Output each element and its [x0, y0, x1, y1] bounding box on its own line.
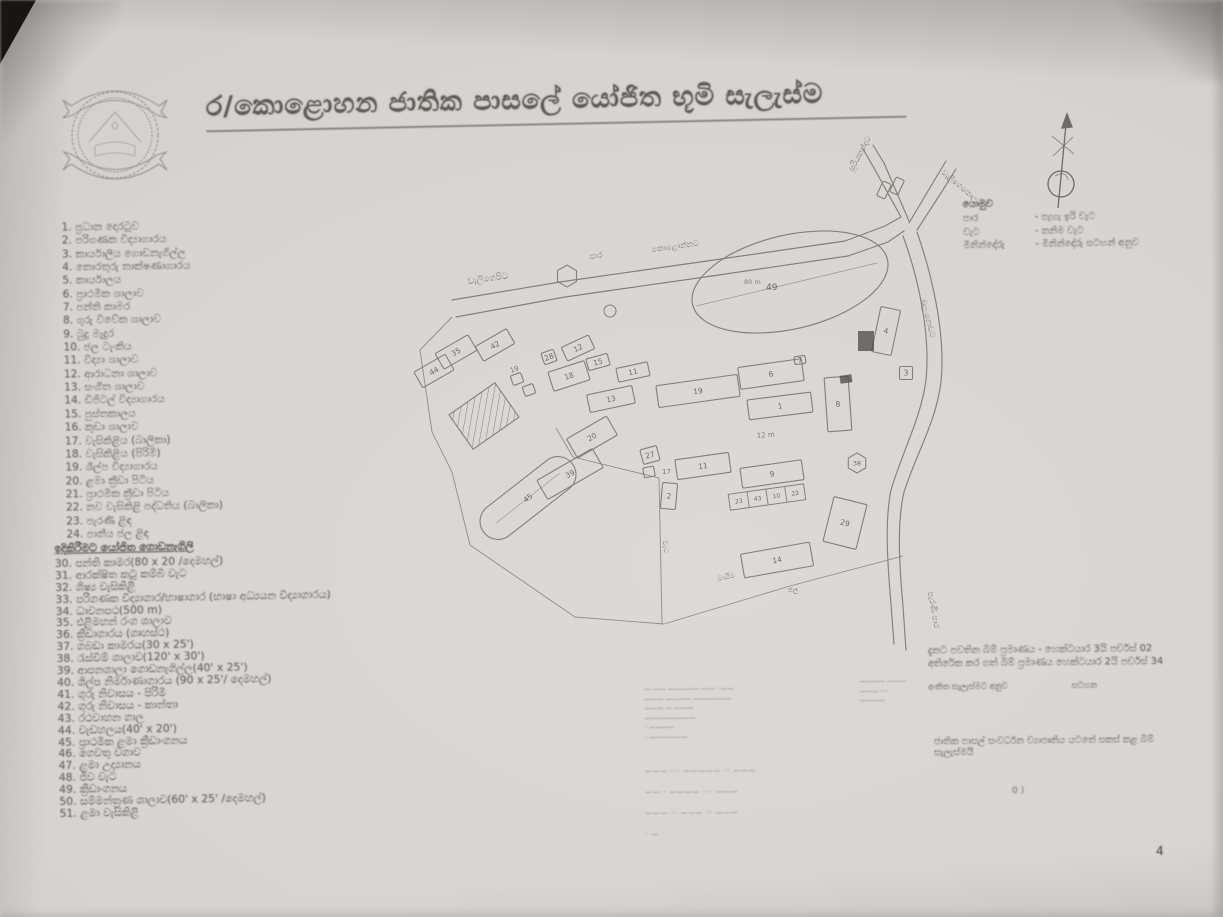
road-label: වැට [661, 540, 670, 553]
building-number: 42 [489, 339, 502, 352]
building-number: 6 [768, 369, 774, 379]
hatched-building [449, 383, 519, 450]
building-outline [522, 383, 536, 396]
building-number: 12 [572, 342, 585, 354]
building-number: 44 [428, 365, 441, 378]
building-number: 28 [543, 351, 555, 363]
building-number: 19 [693, 386, 704, 396]
hexagon-structure [558, 265, 577, 287]
building-number: 13 [605, 394, 616, 405]
lot-divider [747, 492, 749, 508]
photo-corner-shadow-tr [1113, 0, 1223, 80]
building-number: 4 [883, 326, 890, 336]
road-label: කොළොන්නට [651, 237, 700, 255]
road-label: පාර [589, 250, 603, 261]
playground-area-text: 80 m [744, 278, 761, 286]
lot-divider [785, 486, 787, 502]
stamp-line: - —————— [645, 731, 935, 743]
stamp-table-row: ——— ··· ————— ·· ——— [645, 758, 935, 782]
dark-structure [858, 331, 874, 351]
building-number: 1 [777, 401, 783, 411]
legend-existing-list: 1. ප්‍රධාන දොරටුව2. පරිගණක විද්‍යාගාරය3.… [62, 216, 397, 541]
photographed-site-plan-document: 4435422812181511131967184320272391192914… [0, 0, 1223, 917]
lot-number: 23 [735, 498, 744, 506]
road-line [452, 241, 845, 300]
stamp-table-row: —— · ———— ··· ——— [645, 779, 935, 803]
lot-number: 22 [791, 490, 800, 498]
stamp-table: ——— ··· ————— ·· ————— · ———— ··· ——————… [645, 758, 936, 845]
building-number: 11 [698, 461, 709, 471]
playground-chord [696, 263, 877, 306]
playground-number: 49 [766, 283, 778, 293]
road-label: සූරියකන්දට [846, 134, 873, 173]
land-extent-notes: දැනට පවතින බිම් ප්‍රමාණය - හෙක්ටයාර 3යි … [928, 643, 1190, 693]
hexagon-number: 38 [853, 459, 861, 467]
page-number: 4 [1156, 844, 1164, 858]
north-arrow-icon [1048, 114, 1074, 208]
note-remark: සටහන [1071, 678, 1097, 691]
photo-edge-shadow-right [1211, 0, 1223, 917]
note-per-plan: අංකිත සැලැස්මට අනුව [928, 679, 1007, 693]
building-number: 27 [644, 449, 656, 460]
lot-number: 10 [772, 492, 781, 500]
road-line [887, 236, 927, 644]
map-reference-key: යොමුව පාර- පැහැ ඉරි වැටවැට- තනිම වැටමිනි… [963, 194, 1194, 253]
boundary-line [664, 556, 903, 624]
road-label: බලංගොඩට [918, 298, 937, 339]
building-number: 11 [627, 367, 638, 378]
road-label: මායිම [717, 571, 736, 582]
building-number: 18 [563, 370, 575, 382]
building-number: 29 [839, 518, 851, 529]
project-note: ජාතික පාසල් සංවර්ධන ව්‍යාපෘතිය යටතේ සකස්… [934, 734, 1174, 759]
legend-existing-buildings: 1. ප්‍රධාන දොරටුව2. පරිගණක විද්‍යාගාරය3.… [62, 216, 397, 541]
stamp-table-row: ——— ·· ——— ·· ——— [645, 800, 935, 824]
stamp-line: ———— [859, 696, 939, 706]
building-number: 7 [797, 355, 803, 365]
key-term: පාර [963, 211, 1035, 226]
stamp-table-row: · — [646, 821, 936, 845]
key-desc: - තනිම වැට [1035, 223, 1084, 238]
building-outline [643, 466, 656, 478]
key-desc: - පැහැ ඉරි වැට [1035, 209, 1096, 224]
building-number: 15 [592, 356, 604, 367]
stadium-number: 45 [521, 491, 534, 504]
key-rows: පාර- පැහැ ඉරි වැටවැට- තනිම වැටමිනින්දෝරු… [963, 208, 1194, 253]
road-label: ජල [788, 586, 799, 594]
road-line [845, 217, 901, 241]
photo-edge-shadow-bottom [0, 909, 1223, 917]
building-number: 14 [772, 555, 783, 566]
boundary-line [470, 545, 664, 624]
stamp-right-column: ———— —————— ····———— [859, 677, 939, 706]
well-circle [604, 305, 616, 317]
road-label: 17 [662, 468, 671, 476]
road-label: පැරණි පාර [926, 591, 941, 629]
legend-proposed-list: 30. පන්ති කාමර(80 x 20 /දෙමහල්)31. ආරක්ෂ… [55, 552, 382, 820]
road-label: වැලිගෙපිට [467, 270, 510, 287]
building-number: 20 [586, 431, 599, 444]
key-term: වැට [963, 224, 1035, 239]
building-number: 35 [450, 346, 463, 359]
building-number: 39 [564, 468, 577, 481]
lot-number: 43 [753, 495, 762, 503]
road-line [456, 256, 848, 317]
surveyor-stamp-block: — —— ————— —— · ————— ———— ————————— — —… [644, 683, 935, 845]
playground-oval [682, 214, 898, 351]
building-number: 3 [904, 369, 909, 378]
note-additional-extent: අතිරේක කර ගත් බිම් ප්‍රමාණය හෙක්ටයාර 2යි… [928, 655, 1190, 671]
lot-divider [766, 489, 768, 505]
legend-proposed-buildings: ඉදිකිරීමට යෝජිත ගොඩනැගිලි 30. පන්ති කාමර… [54, 537, 381, 820]
dark-structure [840, 374, 853, 384]
building-number: 8 [835, 399, 841, 408]
key-desc: - මිනින්දෝරු සටහන් අනුව [1035, 236, 1139, 252]
key-term: මිනින්දෝරු [963, 238, 1035, 253]
road-label: 12 m [756, 430, 775, 440]
building-number: 2 [666, 491, 672, 500]
stray-mark: 0 ) [1012, 786, 1024, 796]
building-number: 9 [769, 469, 775, 479]
road-line [899, 232, 942, 650]
